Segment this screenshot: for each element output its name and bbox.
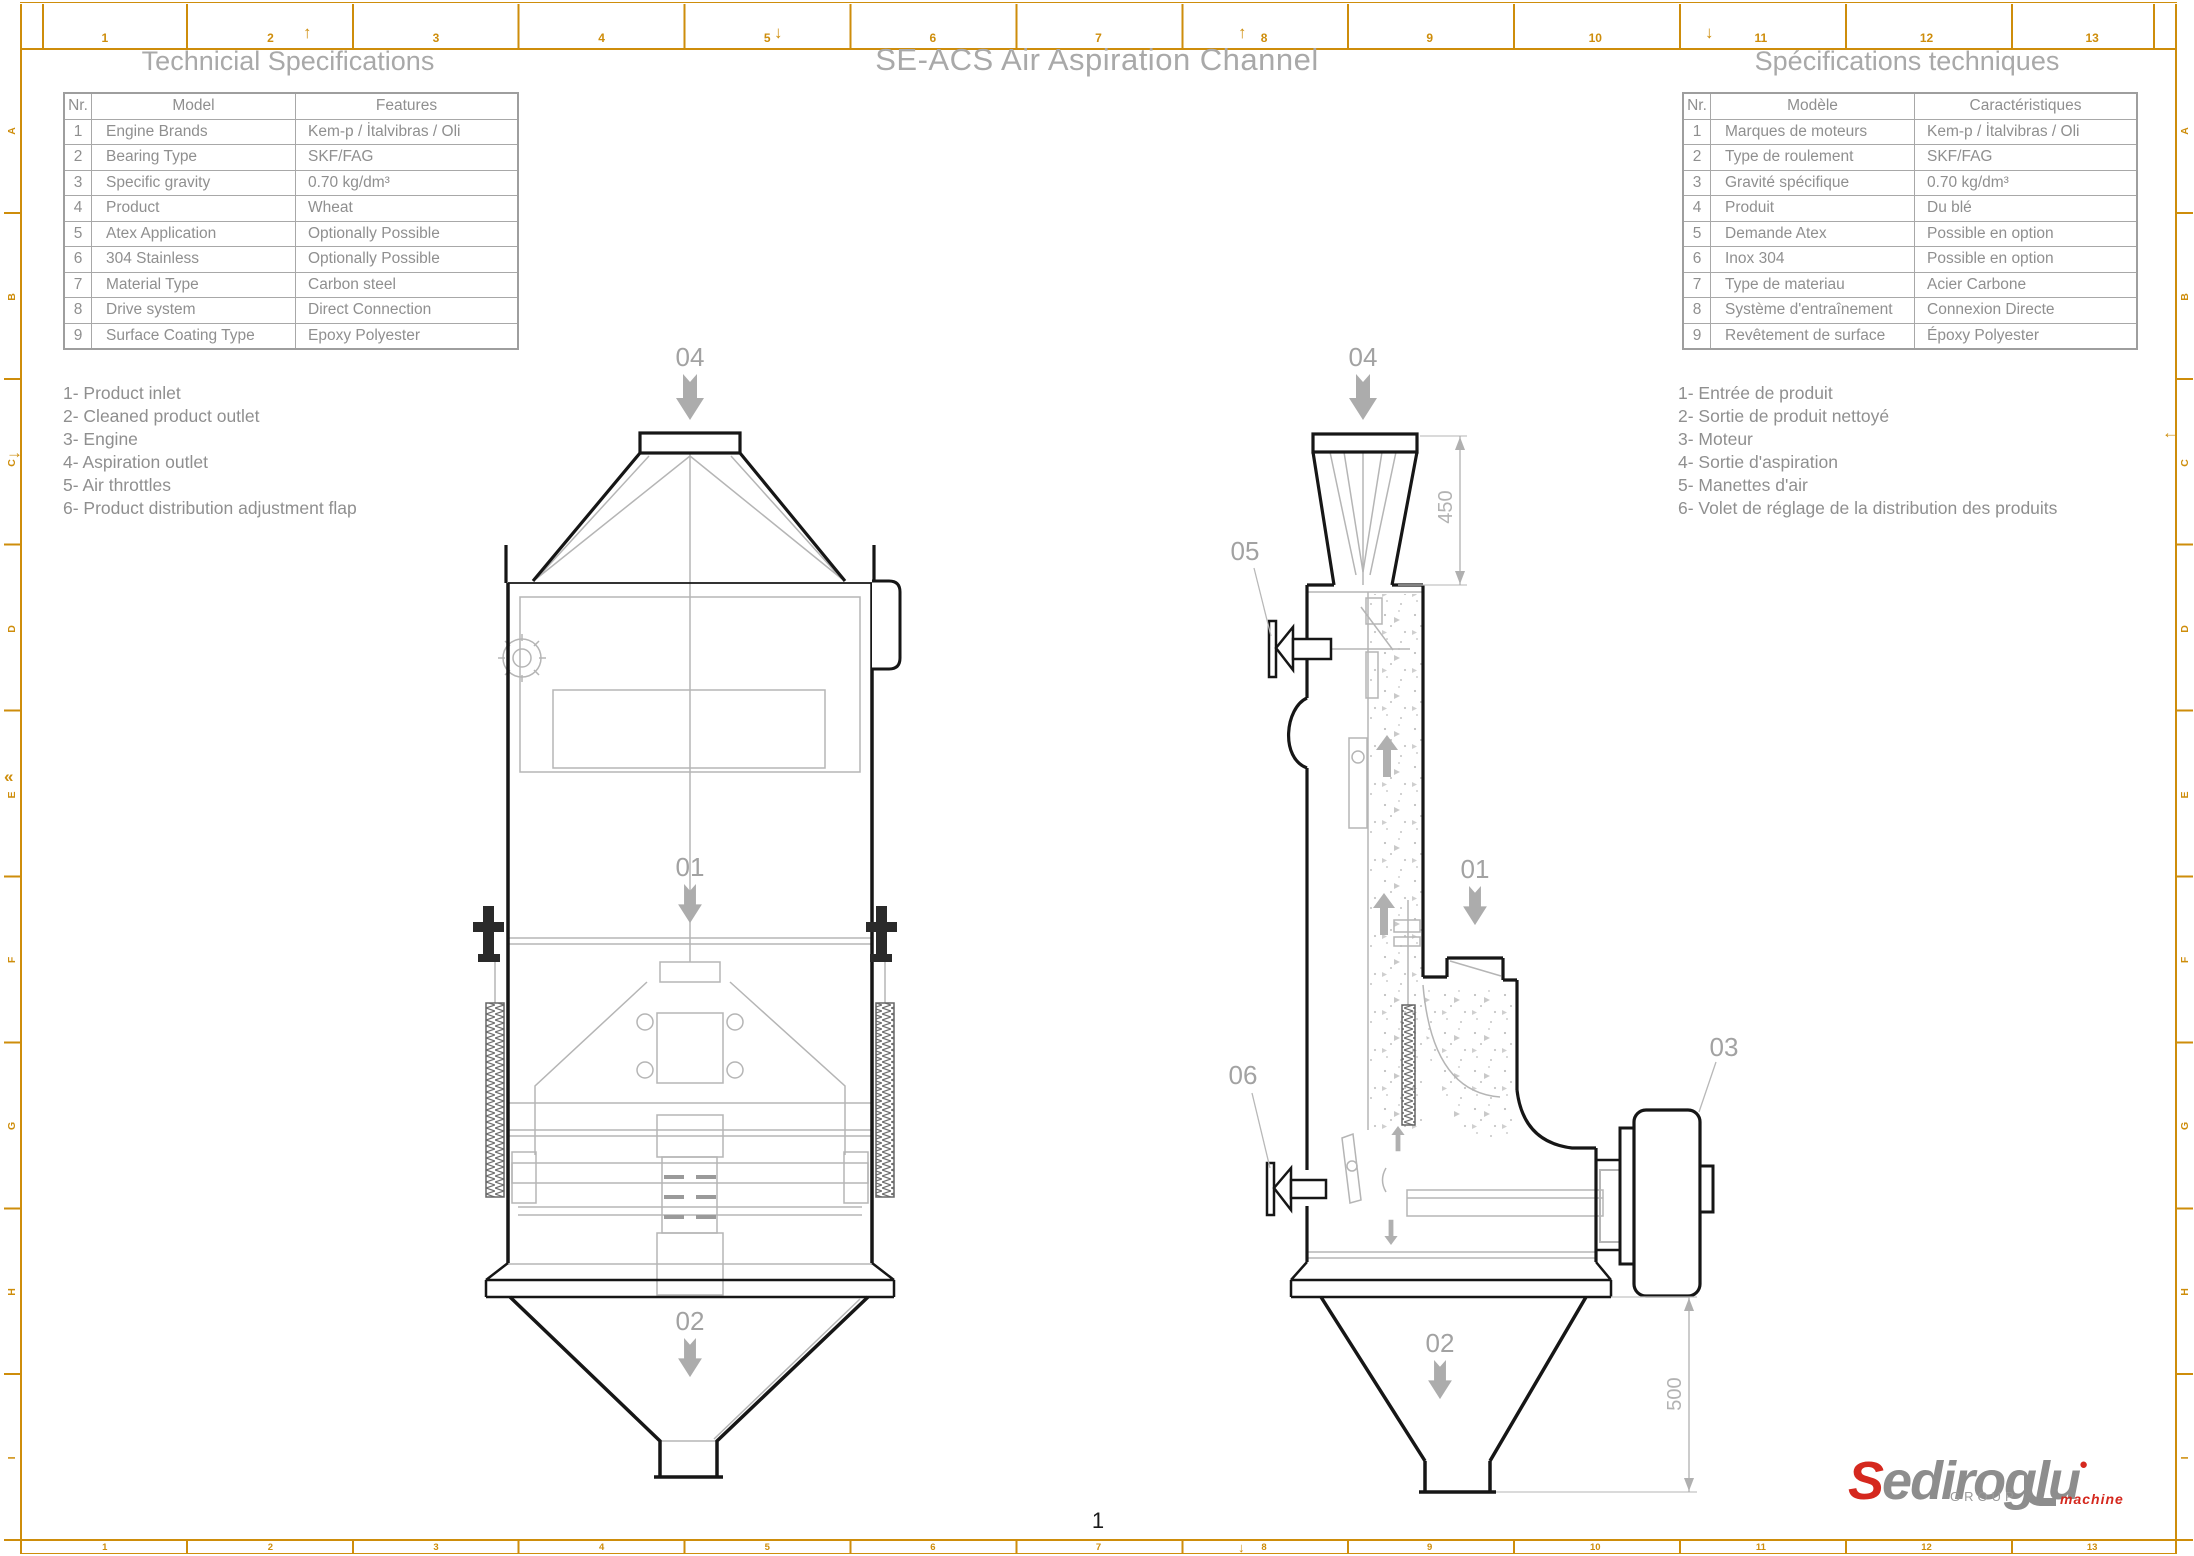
logo-trademark-dot-icon: ● bbox=[2079, 1456, 2088, 1473]
side-view-drawing: 450 500 04 05 01 06 03 02 bbox=[1229, 342, 1739, 1492]
cone-height-dimension: 500 bbox=[1664, 1377, 1686, 1410]
flap-swing-arrow-down-icon bbox=[1384, 1220, 1397, 1245]
front-view-drawing: 04 01 02 bbox=[473, 342, 900, 1477]
flow-arrow-down-icon bbox=[1428, 1360, 1452, 1399]
side-engine-label: 03 bbox=[1710, 1032, 1739, 1062]
logo-swoosh-icon bbox=[2024, 1476, 2056, 1506]
side-product-inlet-label: 01 bbox=[1461, 854, 1490, 884]
flow-arrow-down-icon bbox=[1349, 374, 1377, 420]
page-number: 1 bbox=[1080, 1508, 1116, 1534]
logo-machine-text: machine bbox=[2060, 1491, 2124, 1507]
side-air-throttle-label: 05 bbox=[1231, 536, 1260, 566]
side-aspiration-outlet-label: 04 bbox=[1349, 342, 1378, 372]
hood-height-dimension: 450 bbox=[1435, 490, 1457, 523]
machine-drawing: 04 01 02 bbox=[0, 0, 2194, 1556]
company-logo: Sediroglu● GROUP machine bbox=[1848, 1436, 2138, 1510]
flow-arrow-down-icon bbox=[1463, 886, 1487, 925]
logo-group-text: GROUP bbox=[1950, 1489, 2018, 1504]
front-product-inlet-label: 01 bbox=[676, 852, 705, 882]
front-aspiration-outlet-label: 04 bbox=[676, 342, 705, 372]
front-product-outlet-label: 02 bbox=[676, 1306, 705, 1336]
product-flow-stipple bbox=[1423, 985, 1512, 1140]
flow-arrow-down-icon bbox=[676, 374, 704, 420]
logo-initial: S bbox=[1848, 1451, 1882, 1511]
side-adjustment-flap-label: 06 bbox=[1229, 1060, 1258, 1090]
side-product-outlet-label: 02 bbox=[1426, 1328, 1455, 1358]
flow-arrow-down-icon bbox=[678, 1338, 702, 1377]
drawing-sheet: 12345678910111213 12345678910111213 ABCD… bbox=[0, 0, 2194, 1556]
